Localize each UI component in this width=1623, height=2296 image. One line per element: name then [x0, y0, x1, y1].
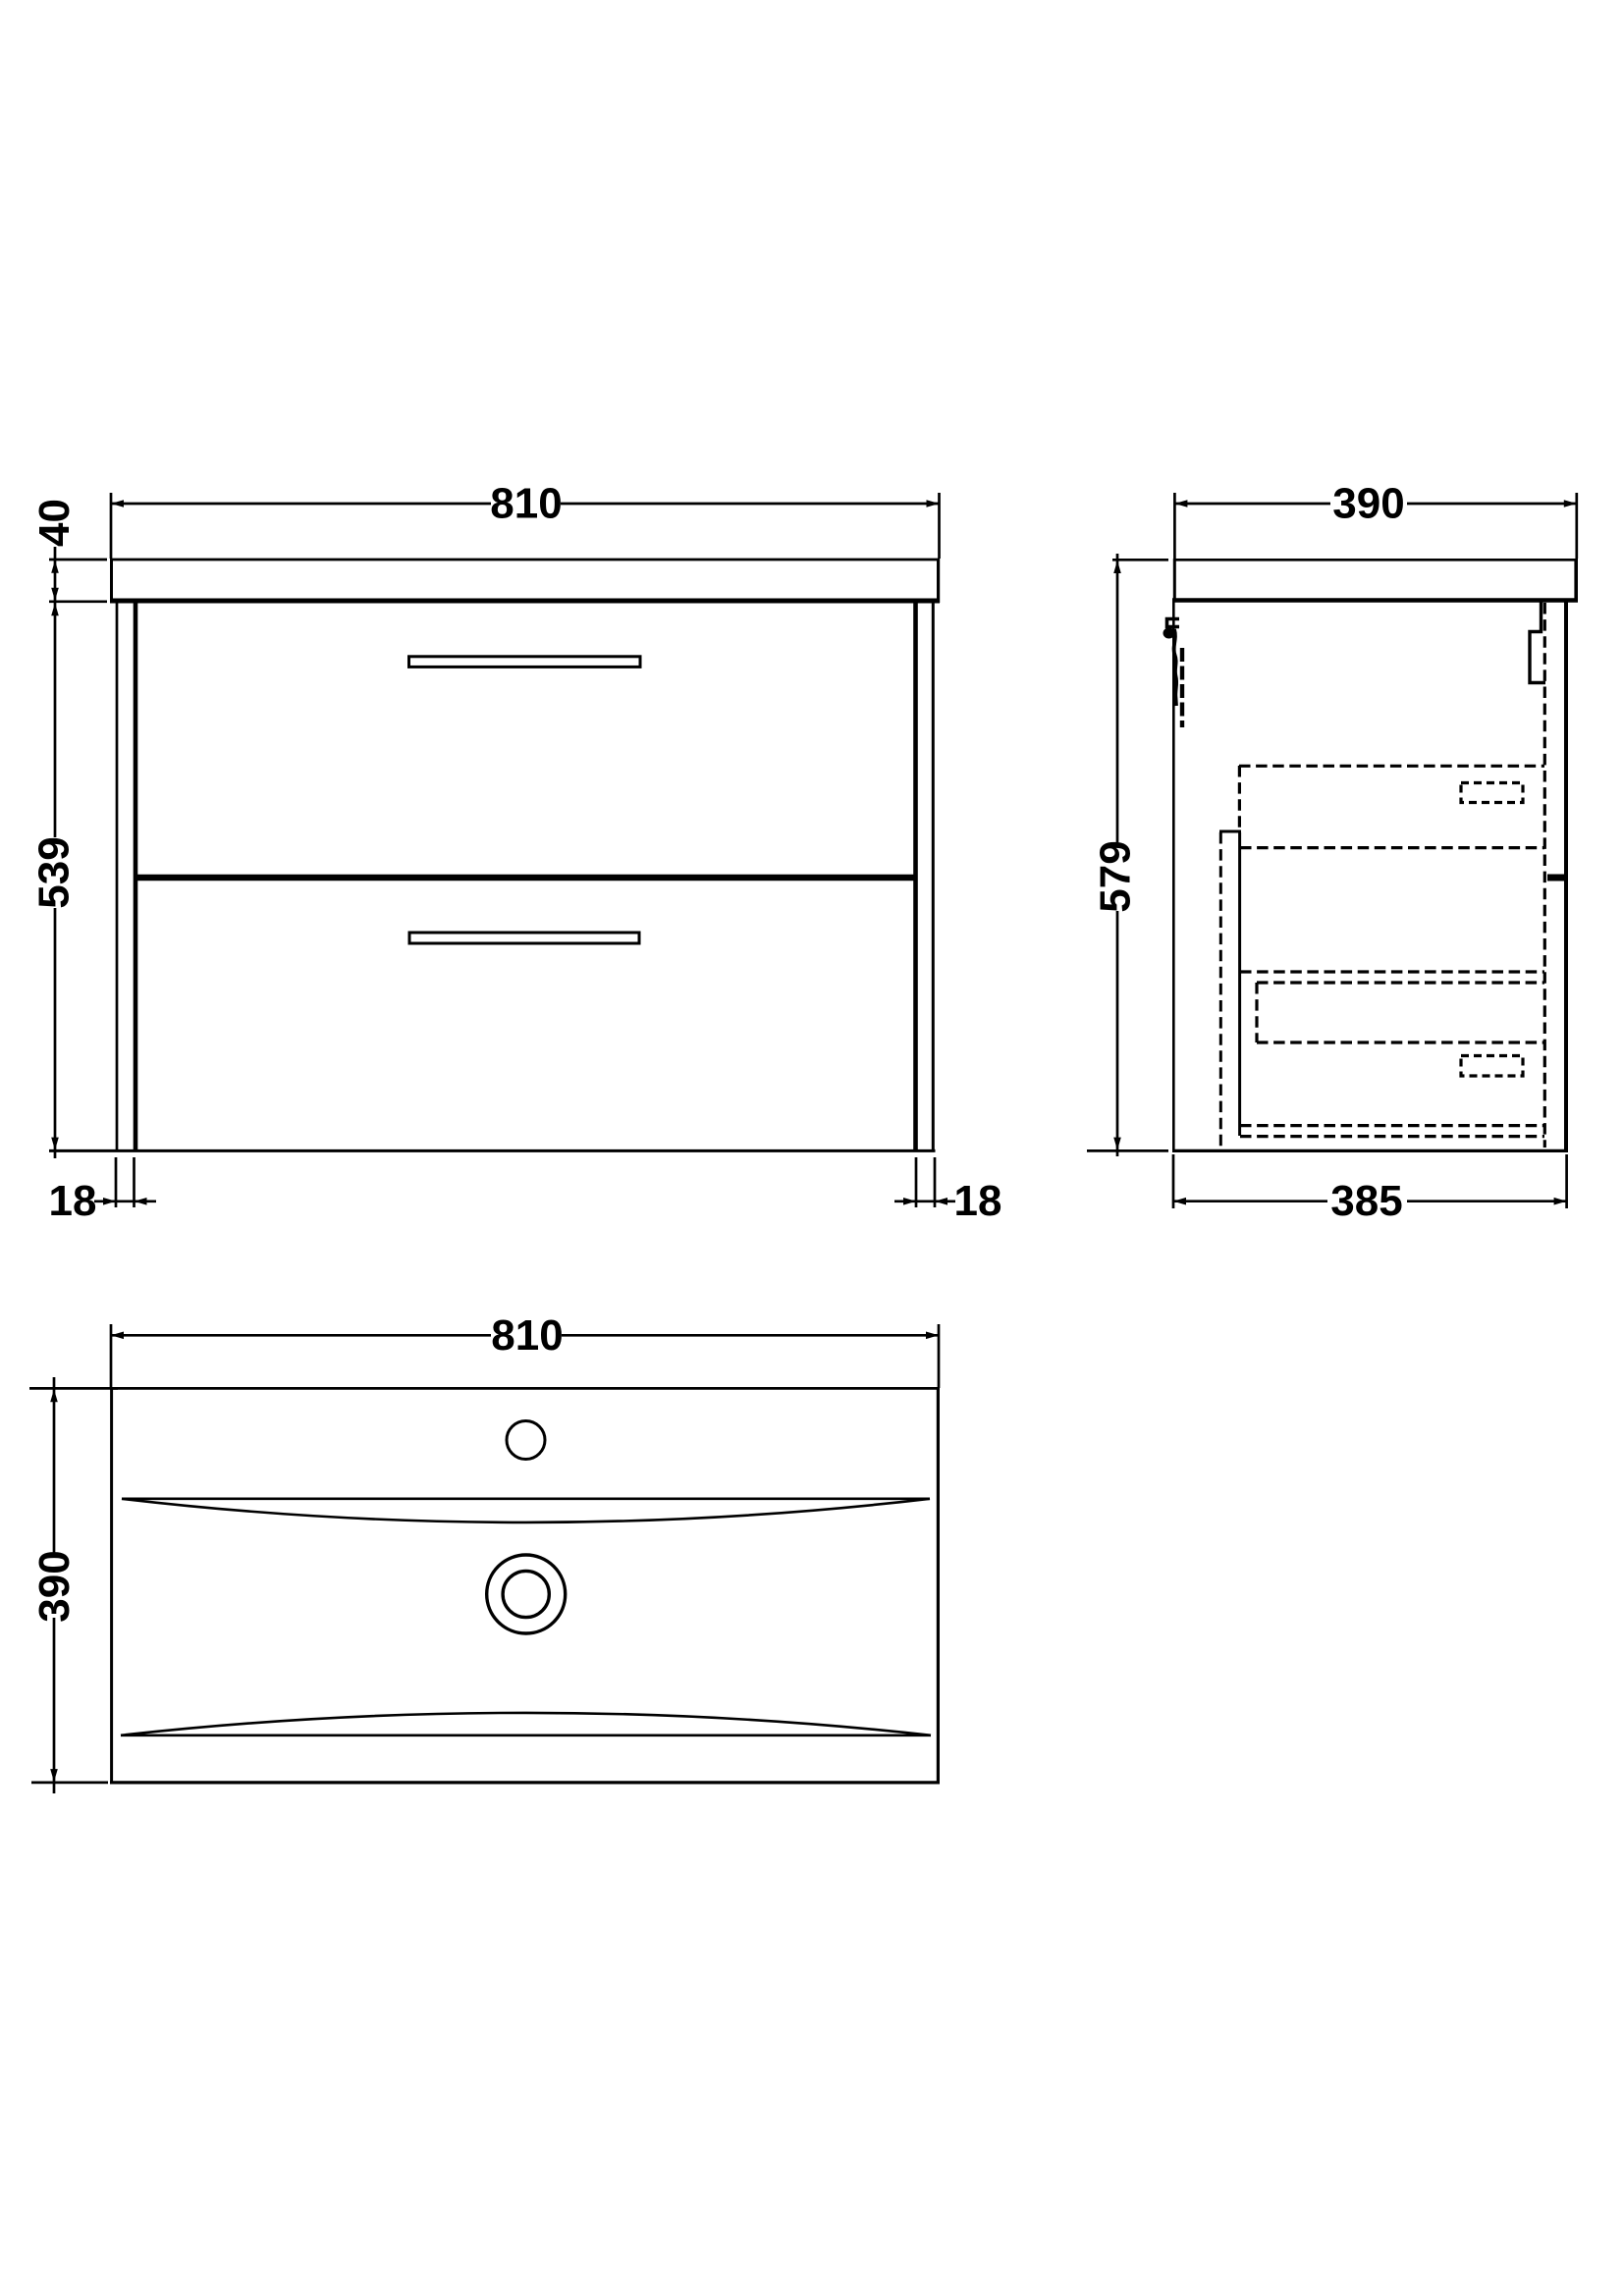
svg-text:18: 18: [954, 1177, 1002, 1225]
svg-text:18: 18: [49, 1177, 97, 1225]
svg-text:40: 40: [30, 499, 79, 547]
svg-text:385: 385: [1330, 1177, 1402, 1225]
svg-text:810: 810: [491, 1311, 563, 1360]
svg-text:539: 539: [30, 836, 79, 908]
svg-text:390: 390: [30, 1550, 79, 1622]
svg-text:390: 390: [1332, 480, 1404, 528]
svg-text:810: 810: [490, 480, 562, 528]
svg-text:579: 579: [1092, 840, 1140, 912]
